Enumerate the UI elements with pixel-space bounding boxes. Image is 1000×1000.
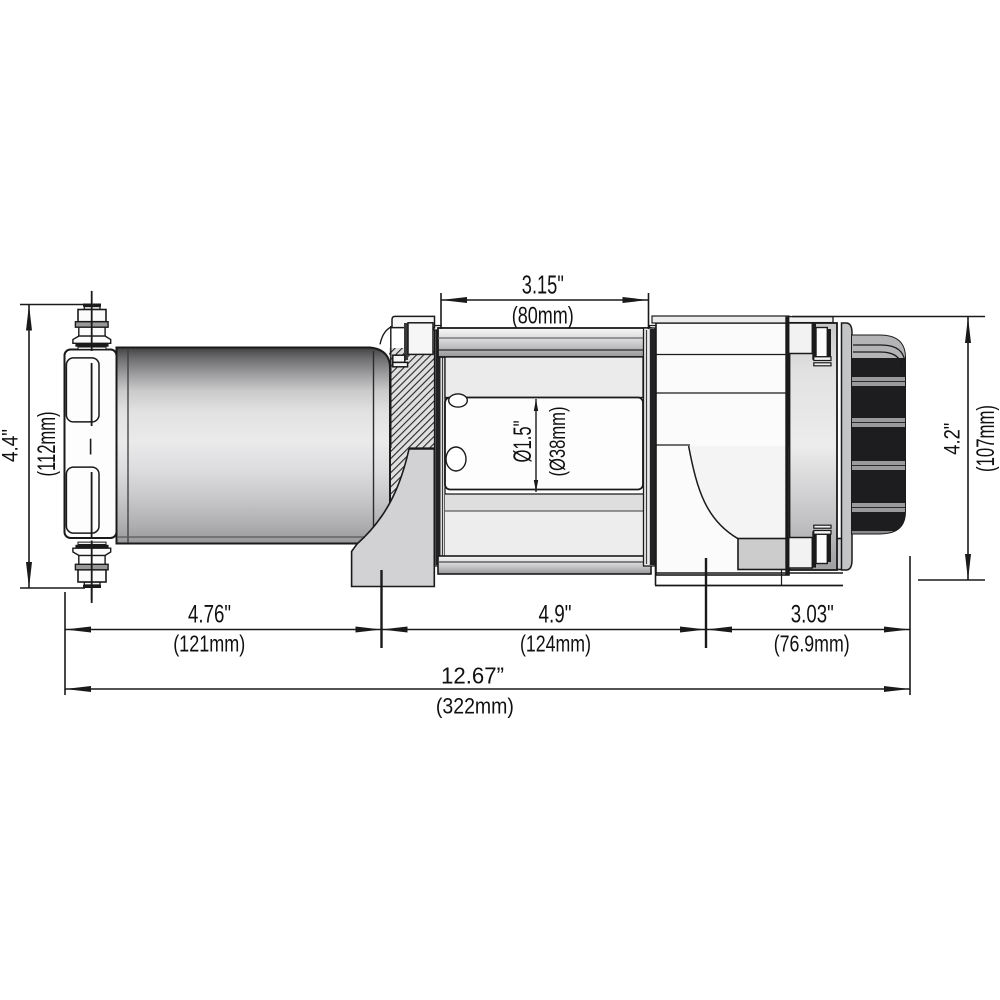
- svg-text:3.03": 3.03": [791, 601, 834, 629]
- svg-text:(124mm): (124mm): [520, 631, 591, 657]
- svg-text:(112mm): (112mm): [33, 412, 61, 477]
- svg-text:(Ø38mm): (Ø38mm): [545, 407, 570, 477]
- svg-text:(76.9mm): (76.9mm): [774, 631, 850, 657]
- svg-text:Ø1.5": Ø1.5": [509, 421, 537, 463]
- svg-text:(121mm): (121mm): [173, 631, 245, 657]
- svg-text:(80mm): (80mm): [512, 303, 574, 330]
- svg-text:4.9": 4.9": [539, 601, 572, 629]
- svg-text:12.67”: 12.67”: [441, 663, 504, 689]
- svg-text:4.76": 4.76": [188, 601, 231, 629]
- svg-text:4.2": 4.2": [940, 423, 965, 455]
- svg-text:(107mm): (107mm): [972, 405, 1000, 472]
- svg-text:(322mm): (322mm): [436, 694, 514, 719]
- svg-text:3.15": 3.15": [522, 270, 564, 300]
- svg-text:4.4": 4.4": [0, 429, 23, 462]
